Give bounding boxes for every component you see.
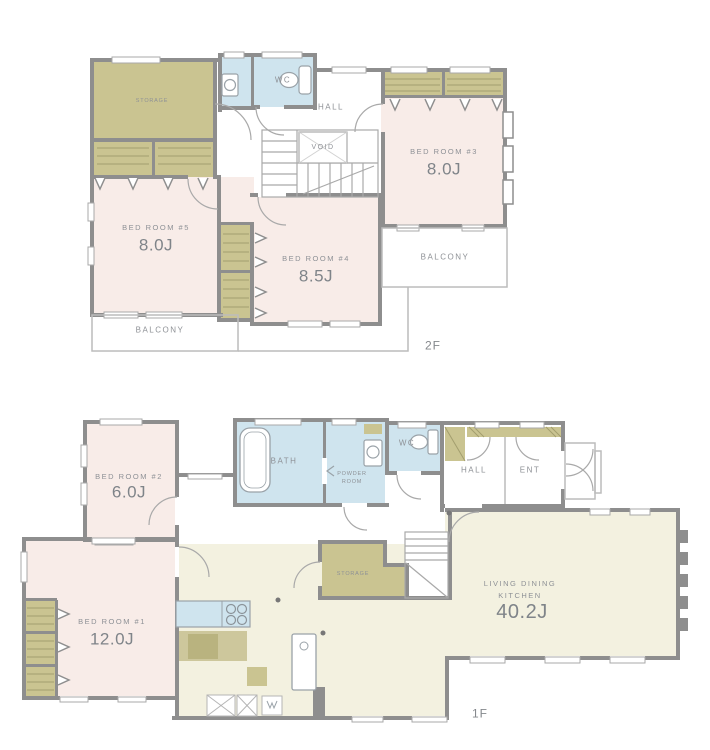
label-floor-2f: 2F <box>425 339 441 352</box>
label-bedroom2-name: BED ROOM #2 <box>95 473 163 481</box>
label-storage-1f: STORAGE <box>337 571 369 577</box>
label-ldk-line1: LIVING DINING <box>484 580 556 588</box>
label-ldk-size: 40.2J <box>496 601 547 623</box>
label-bedroom3-size: 8.0J <box>427 161 461 180</box>
room-fills-1f <box>24 422 676 716</box>
kitchen-counter <box>176 601 250 627</box>
label-bedroom4-name: BED ROOM #4 <box>282 255 350 263</box>
washbasin-icon-1f <box>364 440 382 466</box>
label-storage-2f: STORAGE <box>136 98 168 104</box>
label-bedroom1-name: BED ROOM #1 <box>78 618 146 626</box>
label-void: VOID <box>311 144 334 152</box>
label-bedroom5-size: 8.0J <box>139 237 173 256</box>
label-floor-1f: 1F <box>472 707 488 720</box>
label-balcony-right: BALCONY <box>421 254 470 263</box>
label-hall-2f: HALL <box>318 104 344 113</box>
label-ldk-line2: KITCHEN <box>498 592 541 600</box>
label-powder-line1: POWDER <box>337 471 367 477</box>
label-powder-line2: ROOM <box>342 479 362 485</box>
refrigerator-icon <box>292 634 316 690</box>
label-ent: ENT <box>520 467 541 476</box>
floor-2f <box>88 52 513 351</box>
label-bedroom5-name: BED ROOM #5 <box>122 224 190 232</box>
floor-plan: STORAGE WC HALL VOID BED ROOM #3 8.0J BE… <box>0 0 710 750</box>
label-bedroom4-size: 8.5J <box>299 268 333 287</box>
label-bedroom2-size: 6.0J <box>112 484 146 503</box>
floor-tiles <box>207 695 282 716</box>
label-bedroom3-name: BED ROOM #3 <box>410 148 478 156</box>
washbasin-icon-2f <box>222 74 238 96</box>
label-bedroom1-size: 12.0J <box>90 631 134 650</box>
label-hall-1f: HALL <box>461 467 487 476</box>
label-wc-1f: WC <box>399 440 415 449</box>
label-balcony-bottom: BALCONY <box>136 327 185 336</box>
label-bath: BATH <box>271 458 298 467</box>
entrance-porch <box>565 443 601 499</box>
bathtub-icon <box>240 428 270 492</box>
label-wc-2f: WC <box>275 77 291 86</box>
